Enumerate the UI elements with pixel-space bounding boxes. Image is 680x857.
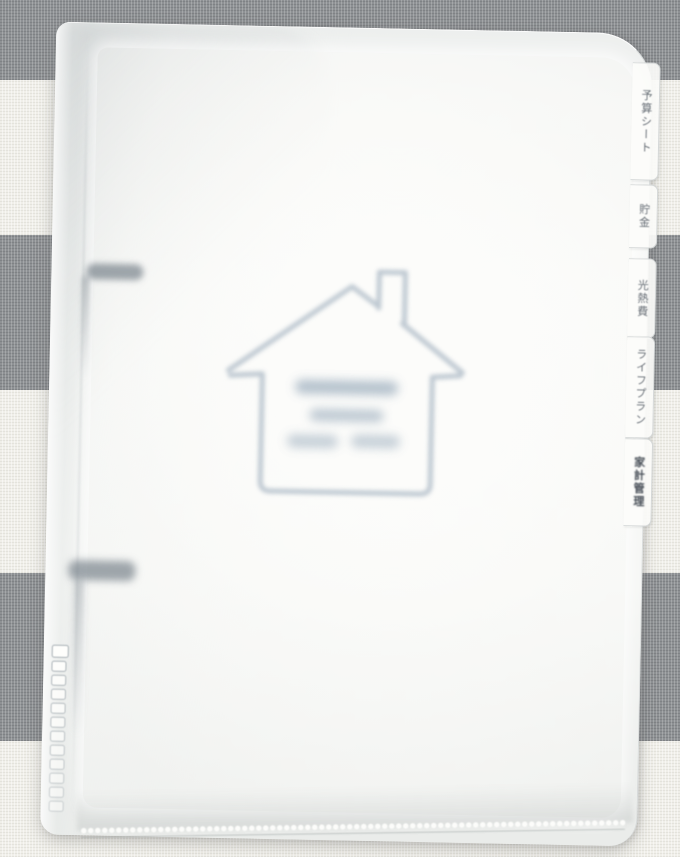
blurred-text-line	[295, 379, 398, 395]
index-tab-life-plan: ライフプラン	[625, 336, 655, 439]
index-tab-label: 家計管理	[632, 456, 644, 508]
zip-tooth	[51, 661, 66, 672]
blurred-text-line	[287, 434, 338, 448]
zip-tooth	[50, 717, 65, 728]
index-tab-label: 予算シート	[639, 89, 651, 154]
binder-ring-top-stem	[80, 275, 89, 379]
zip-tooth	[50, 731, 65, 742]
index-tab-label: 光熱費	[636, 279, 648, 318]
zip-tooth	[49, 773, 64, 784]
zip-tooth	[52, 645, 69, 658]
zip-tooth	[51, 689, 66, 700]
zip-tooth	[49, 801, 64, 812]
zip-tooth	[51, 675, 66, 686]
house-illustration	[215, 260, 478, 513]
blurred-text-line	[351, 435, 400, 449]
zip-tooth	[51, 703, 66, 714]
zip-tooth	[49, 787, 64, 798]
index-tab-savings: 貯金	[629, 184, 658, 249]
binder-cover: 予算シート 貯金 光熱費 ライフプラン 家計管理	[40, 22, 653, 847]
index-tab-label: 貯金	[637, 203, 649, 229]
binder-ring-bottom	[68, 560, 135, 581]
zip-tooth	[49, 759, 64, 770]
binder-ring-top	[86, 263, 143, 280]
blurred-text-line	[309, 409, 383, 422]
zip-tooth	[50, 745, 65, 756]
index-tab-utilities: 光熱費	[627, 258, 657, 339]
index-tab-household-management: 家計管理	[623, 438, 653, 527]
index-tab-label: ライフプラン	[633, 348, 646, 426]
zip-teeth-column	[48, 645, 73, 815]
index-tab-budget-sheet: 予算シート	[630, 62, 660, 181]
